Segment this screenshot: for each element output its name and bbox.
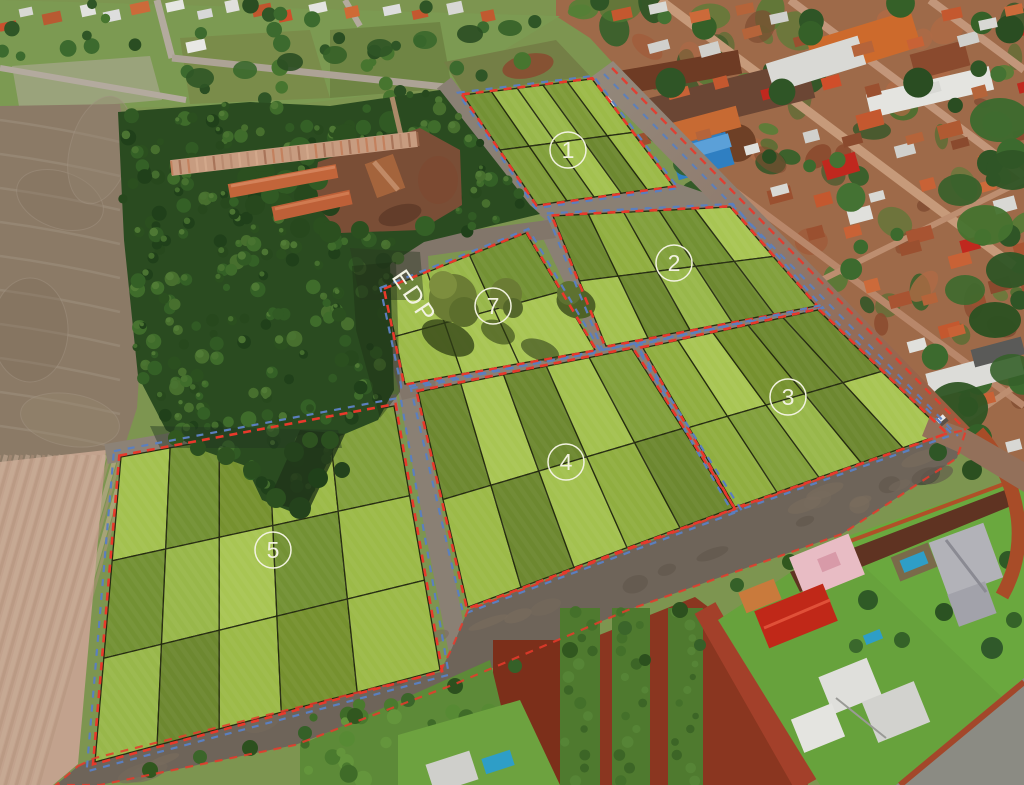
svg-text:5: 5	[267, 537, 280, 563]
svg-text:7: 7	[487, 293, 500, 319]
svg-text:3: 3	[782, 384, 795, 410]
svg-text:4: 4	[560, 449, 573, 475]
svg-text:2: 2	[668, 250, 681, 276]
svg-text:1: 1	[562, 137, 575, 163]
